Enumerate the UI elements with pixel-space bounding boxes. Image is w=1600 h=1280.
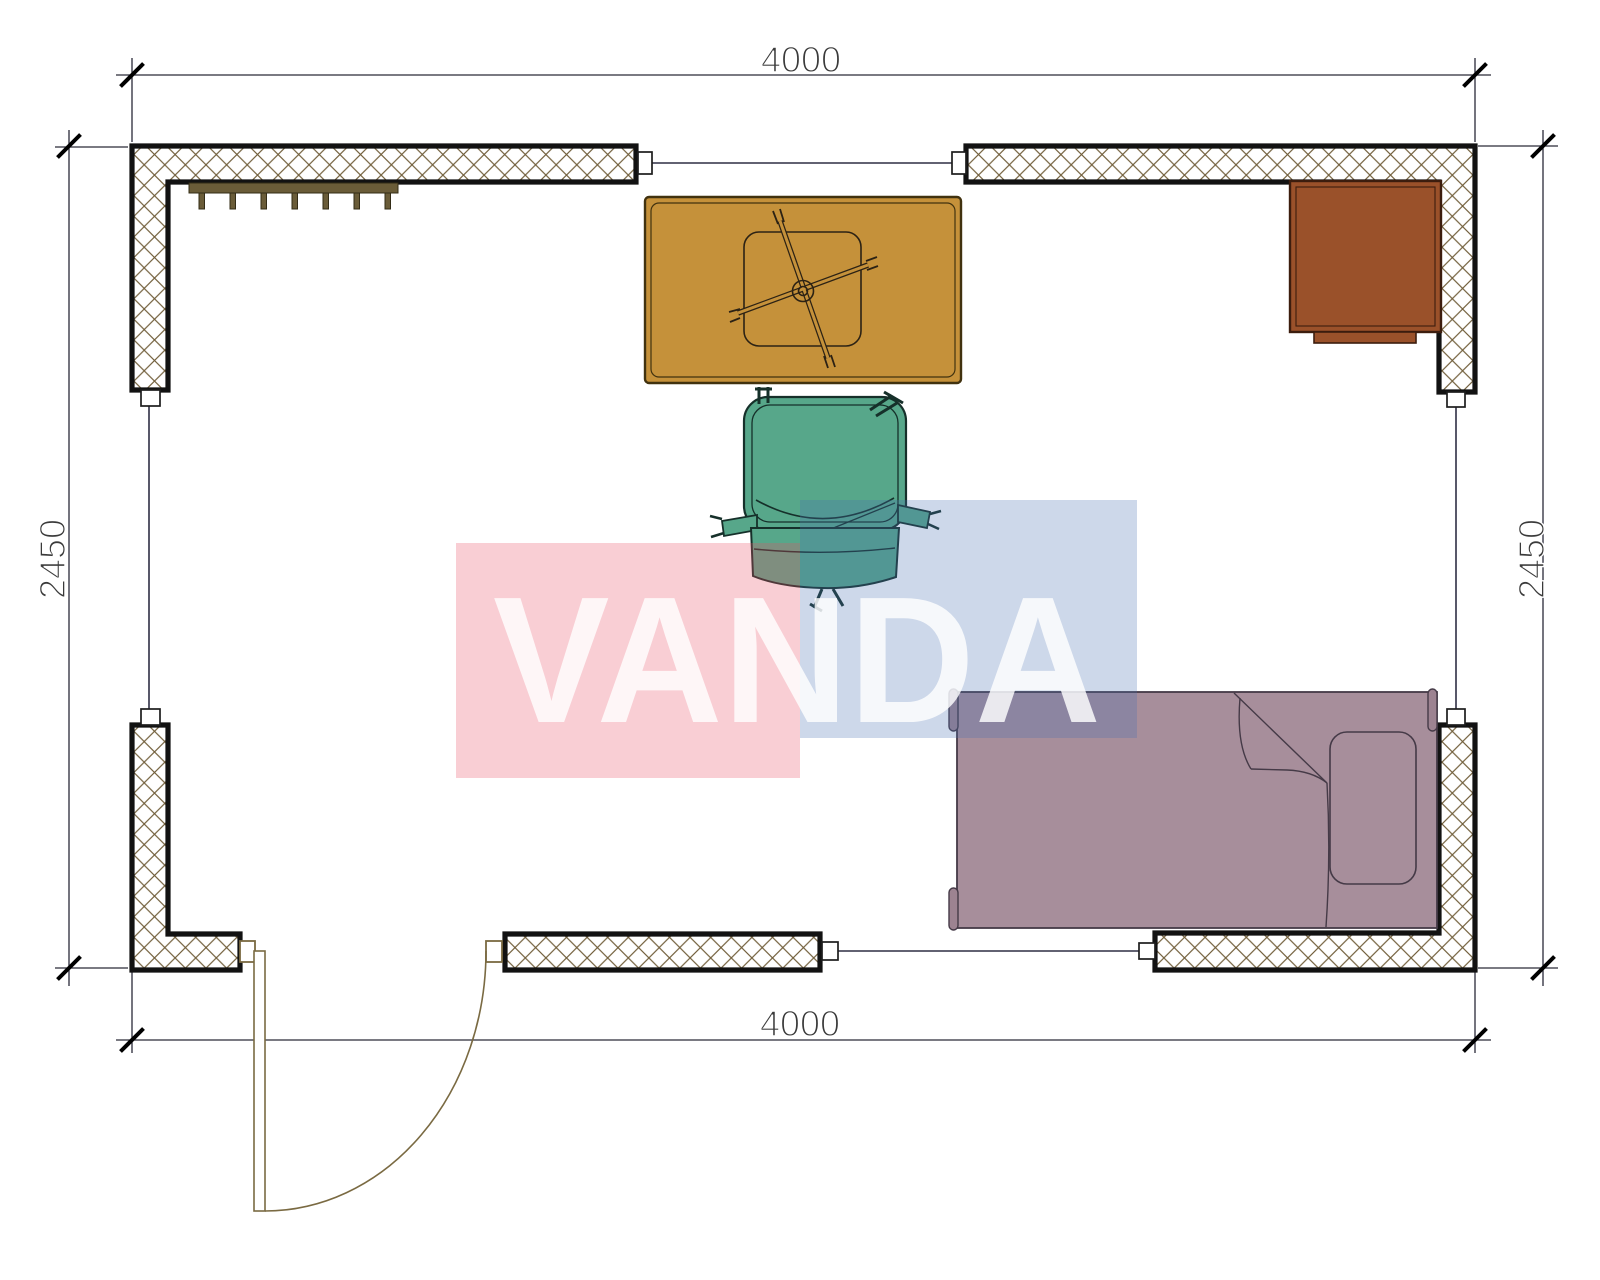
- svg-text:4000: 4000: [760, 1003, 840, 1044]
- svg-text:2450: 2450: [1511, 519, 1552, 599]
- svg-text:4000: 4000: [761, 39, 841, 80]
- svg-text:2450: 2450: [32, 519, 73, 599]
- svg-text:VANDA: VANDA: [493, 560, 1101, 761]
